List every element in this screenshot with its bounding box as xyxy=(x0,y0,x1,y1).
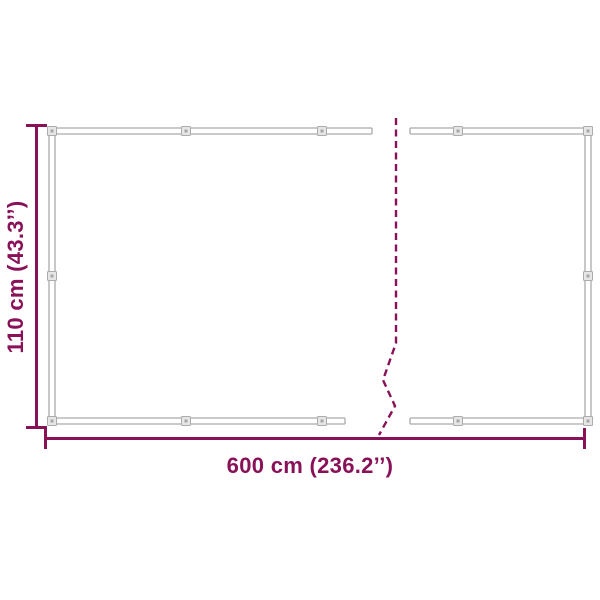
fastening-clip-icon xyxy=(584,127,593,136)
diagram-drawing xyxy=(0,0,600,600)
fastening-clip-icon xyxy=(454,127,463,136)
fastening-clip-icon xyxy=(182,127,191,136)
fastening-clip-icon xyxy=(48,127,57,136)
fastening-clip-icon xyxy=(584,272,593,281)
fastening-clip-icon xyxy=(318,127,327,136)
width-dimension-label: 600 cm (236.2’’) xyxy=(227,453,394,479)
fastening-clip-icon xyxy=(318,417,327,426)
height-dimension-label: 110 cm (43.3’’) xyxy=(3,201,29,354)
product-dimension-diagram: 110 cm (43.3’’) 600 cm (236.2’’) xyxy=(0,0,600,600)
screen-frame xyxy=(48,127,593,426)
fastening-clip-icon xyxy=(584,417,593,426)
frame-clips xyxy=(48,127,593,426)
fastening-clip-icon xyxy=(182,417,191,426)
fastening-clip-icon xyxy=(48,417,57,426)
break-dashed-line xyxy=(379,118,396,435)
width-dimension-line xyxy=(45,428,585,449)
fastening-clip-icon xyxy=(454,417,463,426)
height-dimension-line xyxy=(26,125,47,428)
fastening-clip-icon xyxy=(48,272,57,281)
